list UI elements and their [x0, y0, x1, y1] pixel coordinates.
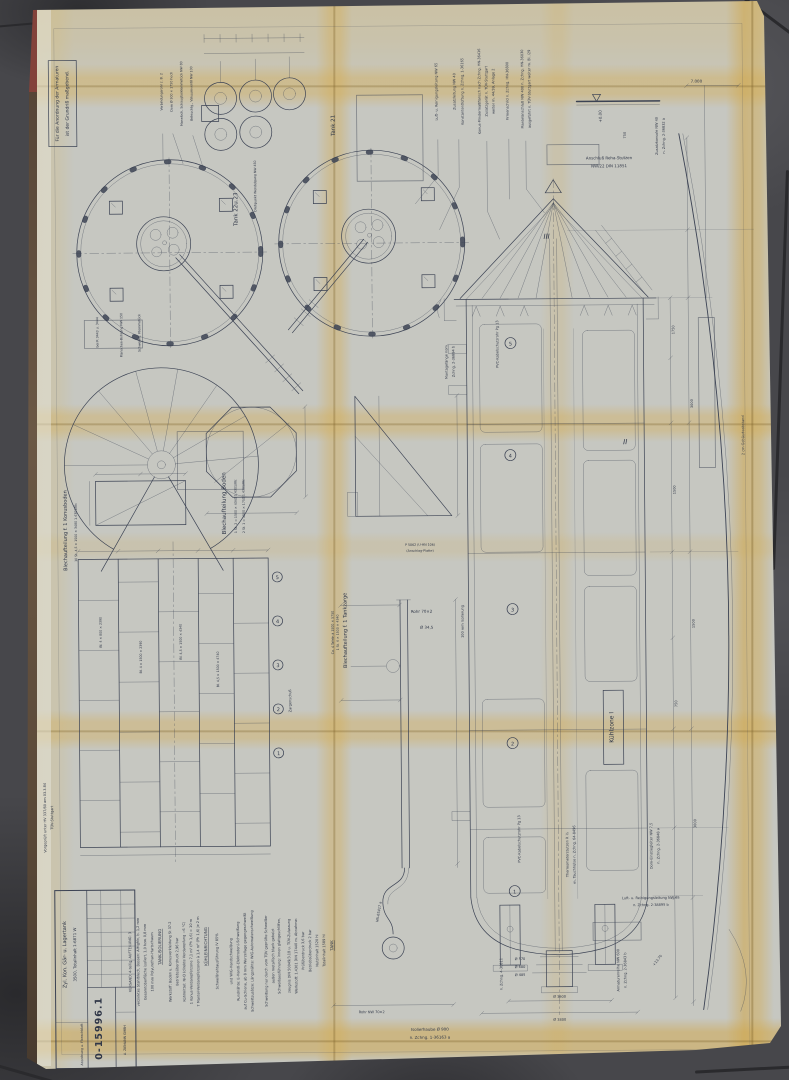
tank-data-line: Schweißausführung: innen glattgeschliffe…: [277, 918, 282, 994]
label-konus-title: Blechaufteilung f. 1 Konusboden: [63, 490, 70, 571]
label-zchng4: n. Zchng. 4-36811: [499, 958, 503, 990]
roman-II: II: [623, 438, 627, 446]
tank-data: TANK Totalinhalt 1589 hl Nutzinhalt 1520…: [271, 917, 335, 994]
dim: 3000: [690, 399, 694, 408]
detail-note: (Anschlag-Platte): [406, 549, 433, 553]
stutzen-note: Anschluß Reha-Stutzen: [586, 155, 633, 160]
section-number: 3: [511, 607, 514, 613]
label-thermo: Thermometerstutzen R ½: [565, 832, 569, 879]
spec: 7 Mantel-Verdampferzonen à 1,4 m² (Ph 1,…: [196, 916, 201, 1007]
spec: und WIG-Handschweißung: [229, 938, 233, 984]
section-number: 2: [511, 741, 514, 747]
ring-number: 4: [276, 619, 279, 625]
tank-elevation: Kühlzone I 5 4 3 2 1 III II PVC-Kabelsch…: [403, 178, 681, 1040]
dim-680: Ø 680: [515, 964, 526, 969]
bracket-detail: P 5062 (U-HN 106) (Anschlag-Platte): [347, 393, 460, 553]
label-plan-note: Flanschen-Bohrung NW 150: [119, 313, 123, 357]
label-luft: n. Zchng. 2-38895 b: [633, 903, 669, 907]
label-zarge-title: Blechaufteilung f. 1 Tankzarge: [342, 593, 349, 668]
note: Firmenschild n. Zchng. HN-36800: [505, 62, 509, 120]
note: Zusatzleitung NW 40: [452, 73, 456, 110]
spec-heading: TANK-ISOLIERUNG: [157, 929, 162, 966]
note: Konstantentlüftung n. Zchng. 1-36165: [460, 58, 465, 125]
plate-size: Bl. 4,5 × 1500 × 4740: [216, 651, 220, 687]
spec: Rundnähte: E-Hand(-Elektroden)-Schweißun…: [236, 922, 241, 1001]
item-label: Verbindungsrohr z. B. 2: [159, 73, 163, 110]
tank-data-line: Betriebsüberdruck 2 bar: [308, 929, 312, 972]
plate-size: Bl. 4,5 × 1500 × 4340: [179, 624, 183, 660]
note: Luft- u. Reinigungsleitung NW 65: [434, 63, 438, 121]
tank-data-heading: TANK: [329, 940, 334, 952]
label-boden-l2: 2 St. 1 = 1500 × 1750 1.4301/IIIc: [242, 479, 246, 533]
dim: 750: [674, 700, 678, 707]
dim-7000: 7.000: [691, 79, 703, 84]
tile-seam: [772, 170, 789, 570]
corner-note-line2: ist der Grundriß maßgebend.: [64, 71, 71, 136]
label-armaturen: n. Zchng. 2-36843 b: [623, 952, 627, 988]
label-thermo: m. Tauchhülse n. Zchng. 64-8496: [572, 825, 576, 884]
drawing-subtitle: 3500, Totalinhalt 1-6871 W: [72, 927, 77, 981]
drawing-number: 0-15996.1: [94, 997, 105, 1060]
label-leiter: Dom-Einstiegleiter NW 7,5: [649, 823, 653, 869]
top-left-item-labels: Verbindungsrohr z. B. 2 Dom Ø 500 × 1750…: [159, 61, 203, 168]
section-number: 5: [509, 341, 512, 347]
level-mark: +0.00: [598, 110, 603, 123]
spec: Betriebsüberdruck 2,96 bar: [175, 937, 179, 986]
dim-750: 750: [623, 132, 627, 139]
doc-type: Anordnung u. Flanschblatt: [80, 1023, 84, 1066]
item-label: Mannloch, Schauglasklemmstück NW 80: [179, 61, 184, 126]
spec: Werkstoff: Boden u. Konusverkleidung St …: [168, 921, 173, 1002]
konusboden-plate: Blechaufteilung f. 1 Konusboden 10 St. 4…: [62, 472, 188, 571]
nozzle-detail-circles: [201, 34, 306, 151]
note: Mantelanschluß NW 400 n. Zchng. HN-36030: [520, 49, 525, 128]
label-kuehlzone: Kühlzone I: [608, 712, 615, 743]
label-zargenschuss: Zargenschuß: [288, 689, 292, 713]
spec: Schweißnahtausführung IV 85%: [215, 933, 219, 990]
corner-note: Für die Anordnung der Armaturen ist der …: [48, 60, 77, 146]
section-number: 1: [513, 889, 516, 895]
pruef-line: Vorgeprüft unter HV 337/80 am 03.3.84: [43, 782, 48, 852]
photo-scene: Für die Anordnung der Armaturen ist der …: [0, 0, 789, 1080]
label-haube: n. Zchng. 1-36163 a: [410, 1035, 451, 1040]
shell-plate-grid: Bl. 4 × 800 × 2390 Bl. 4 × 1500 × 2390 B…: [76, 540, 351, 862]
label-boden-title: Blechaufteilung Boden: [221, 472, 227, 535]
label-zarge-l1: Ca. 4 Tafeln à 1500 × 5750: [331, 611, 335, 655]
top-right-notes: +0.00 750 Anschluß Reha-Stutzen NW/22 DI…: [576, 78, 742, 298]
label-armaturen: Armaturenreihe NW 600: [616, 949, 620, 992]
drawing-linework: Für die Anordnung der Armaturen ist der …: [0, 0, 789, 1080]
stutzen-note: NW/22 DIN 11851: [591, 163, 627, 168]
item-label: Dom Ø 500 × 1750 hoch: [168, 72, 173, 112]
tank-data-line: Prüfüberdruck 3,6 bar: [301, 931, 305, 970]
label-plan-note: bei R 3443 u. 3444: [95, 317, 99, 347]
label-abstand: 2 cm Gebäudeabstand: [741, 415, 745, 455]
title-block: Zyl. Kon. Gär- u. Lagertank 3500, Totali…: [55, 890, 136, 1069]
company-name: A. ZIEMANN GMBH: [123, 1025, 127, 1055]
konsole-note: n. Zchng. 2-36832 a: [662, 118, 666, 154]
label-kabel: PVC-Kabelschutzrohr Pg 13: [517, 815, 521, 863]
label-level-1370: +13.70: [652, 954, 663, 967]
note: weiter m. 44/39, Anlage 2: [491, 68, 495, 113]
dim: 3000: [693, 819, 697, 828]
tank-data-line: außen metallisch blank gebeizt: [271, 928, 275, 983]
label-rohr: Rohr 70×2: [411, 609, 433, 614]
label-tank-21: Tank 21: [331, 115, 337, 137]
spec: VERSAND: 4-teilig, AUFTEILUNG: 3: [128, 932, 132, 992]
pruef-line: TÜV-Stuttgart: [49, 805, 54, 831]
label-haube: Isolierhaube Ø 900: [411, 1027, 449, 1032]
inspection-note: Vorgeprüft unter HV 337/80 am 03.3.84 TÜ…: [43, 782, 55, 853]
label-hn: HN-65417 a: [375, 901, 382, 922]
roman-III: III: [543, 233, 549, 241]
label-pivot: Drehpunkt Wendelgang NW 450: [253, 160, 257, 211]
plate-size: Bl. 4 × 800 × 2390: [99, 617, 103, 648]
plan-tank-21: Tank 21: [274, 114, 470, 339]
spec-heading: KÜHLEINRICHTUNG: [203, 927, 208, 966]
label-plan-note: Schwenkb. Klemmstück: [137, 314, 141, 352]
tile-seam: [0, 22, 34, 27]
spec: Schweißung nur durch vom TÜV geprüfte Sc…: [263, 915, 269, 1007]
tank-data-line: zeugnis DIN 50049/3.1B u. TÜV-Zulassung: [286, 919, 292, 993]
section-number: 4: [509, 453, 512, 459]
detail-note: P 5062 (U-HN 106): [405, 543, 435, 547]
right-dimensions: 1750 1500 3000 1500 750 3000 2 cm Gebäud…: [567, 133, 760, 1012]
ring-number: 3: [276, 663, 279, 669]
blueprint-sheet: Für die Anordnung der Armaturen ist der …: [0, 0, 789, 1080]
spec: Schweißzusätze: Längsnähte: WIG-Automate…: [250, 910, 255, 1012]
ring-number: 5: [276, 575, 279, 581]
plan-tank-22-23: Tank 22u.23 Schwenkb. Klemmstück Flansch…: [72, 157, 303, 396]
note: Konus-Mindermaßflansch nach Zchng. HN-36…: [477, 48, 482, 134]
dim: 1750: [671, 325, 675, 334]
label-konus-l1: 10 St. 4,5 × 1500 × 3480 1.4301/IIIc: [74, 503, 78, 562]
label-rohr2: Rohr NW 70×2: [359, 1010, 385, 1014]
label-montage: Zchng. 2-36894 b: [451, 345, 455, 377]
dim-3800: Ø 3800: [553, 1017, 566, 1022]
ring-number: 2: [277, 707, 280, 713]
konsole-note: Zusatzkonsole NW 40: [655, 117, 659, 155]
label-kabel: PVC-Kabelschutzrohr Pg 13: [495, 320, 499, 368]
corner-note-line1: Für die Anordnung der Armaturen: [54, 66, 61, 142]
dim: 1500: [673, 485, 677, 494]
spec: 1 Konus-Verdampferzone 7,1 m² (Ph 1,6) =…: [189, 918, 194, 1004]
spec: auf Cu-Schiene, ab 8 mm Wurzellage gegen…: [243, 912, 248, 1010]
tank-data-line: Werkstoff: 1.4301 DIN 17440 m. Abnahme-: [294, 917, 299, 993]
dim-485: Ø 485: [515, 972, 526, 977]
label-tank-22-23: Tank 22u.23: [233, 192, 239, 227]
label-boden-l1: 1 St. 2 = 1500 × 4340 1.4301/IIIc: [234, 479, 238, 533]
tank-data-line: Nutzinhalt 1520 hl: [315, 934, 319, 966]
tile-seam: [695, 1065, 789, 1073]
spec: 100 mm Polyurethan-Hartschaum: [150, 932, 154, 992]
label-luft: Luft- u. Reinigungsleitung NW 65: [622, 896, 680, 900]
ring-number: 1: [277, 751, 280, 757]
spec-notes: Schweißung nur durch vom TÜV geprüfte Sc…: [128, 910, 269, 1013]
bottom-plate-octagon: Blechaufteilung Boden 1 St. 2 = 1500 × 4…: [204, 405, 308, 535]
dim-570: Ø 570: [515, 956, 526, 961]
note: ausgeführt n. TÜV-Stuttgart weiter m. Bl…: [526, 50, 532, 129]
label-isolierung: 100 mm Isolierung: [461, 605, 465, 638]
note: Zusatzgerät n. TÜV-Stuttgart: [483, 65, 488, 116]
dim: 1500: [692, 619, 696, 628]
label-leiter: n. Zchng. 2-36848 a: [656, 828, 660, 864]
top-notes: Luft- u. Reinigungsleitung NW 65 Zusatzl…: [414, 48, 544, 240]
correction-patches: [83, 92, 720, 944]
spec: verzinktes Stahlblech, Bossen: AlMgMn, b…: [136, 917, 141, 1006]
plate-size: Bl. 4 × 1500 × 2390: [139, 641, 143, 674]
spec: Gesamtoberfläche isoliert, 1,0 bzw. 0,8 …: [143, 923, 148, 1000]
label-montage: Montagelänge nom.: [444, 344, 448, 379]
drawing-title: Zyl. Kon. Gär- u. Lagertank: [62, 921, 69, 988]
item-label: Beleuchtg., Vakuumventil NW 100: [189, 66, 193, 120]
tank-data-line: Totalinhalt 1589 hl: [322, 934, 326, 967]
spec: Kühlmittel: NH3 (direkte Verdampfung −6 …: [182, 921, 187, 1002]
label-zarge-l2: 1 St. 4 × 1500 × 4340: [336, 614, 340, 650]
label-dia: Ø 34,5: [420, 625, 434, 630]
dim-3600: Ø 3600: [553, 994, 566, 999]
cone-development-fan: [64, 367, 260, 572]
riser-pipe-detail: Rohr 70×2 Ø 34,5 100 mm Isolierung HN-65…: [328, 597, 467, 1014]
